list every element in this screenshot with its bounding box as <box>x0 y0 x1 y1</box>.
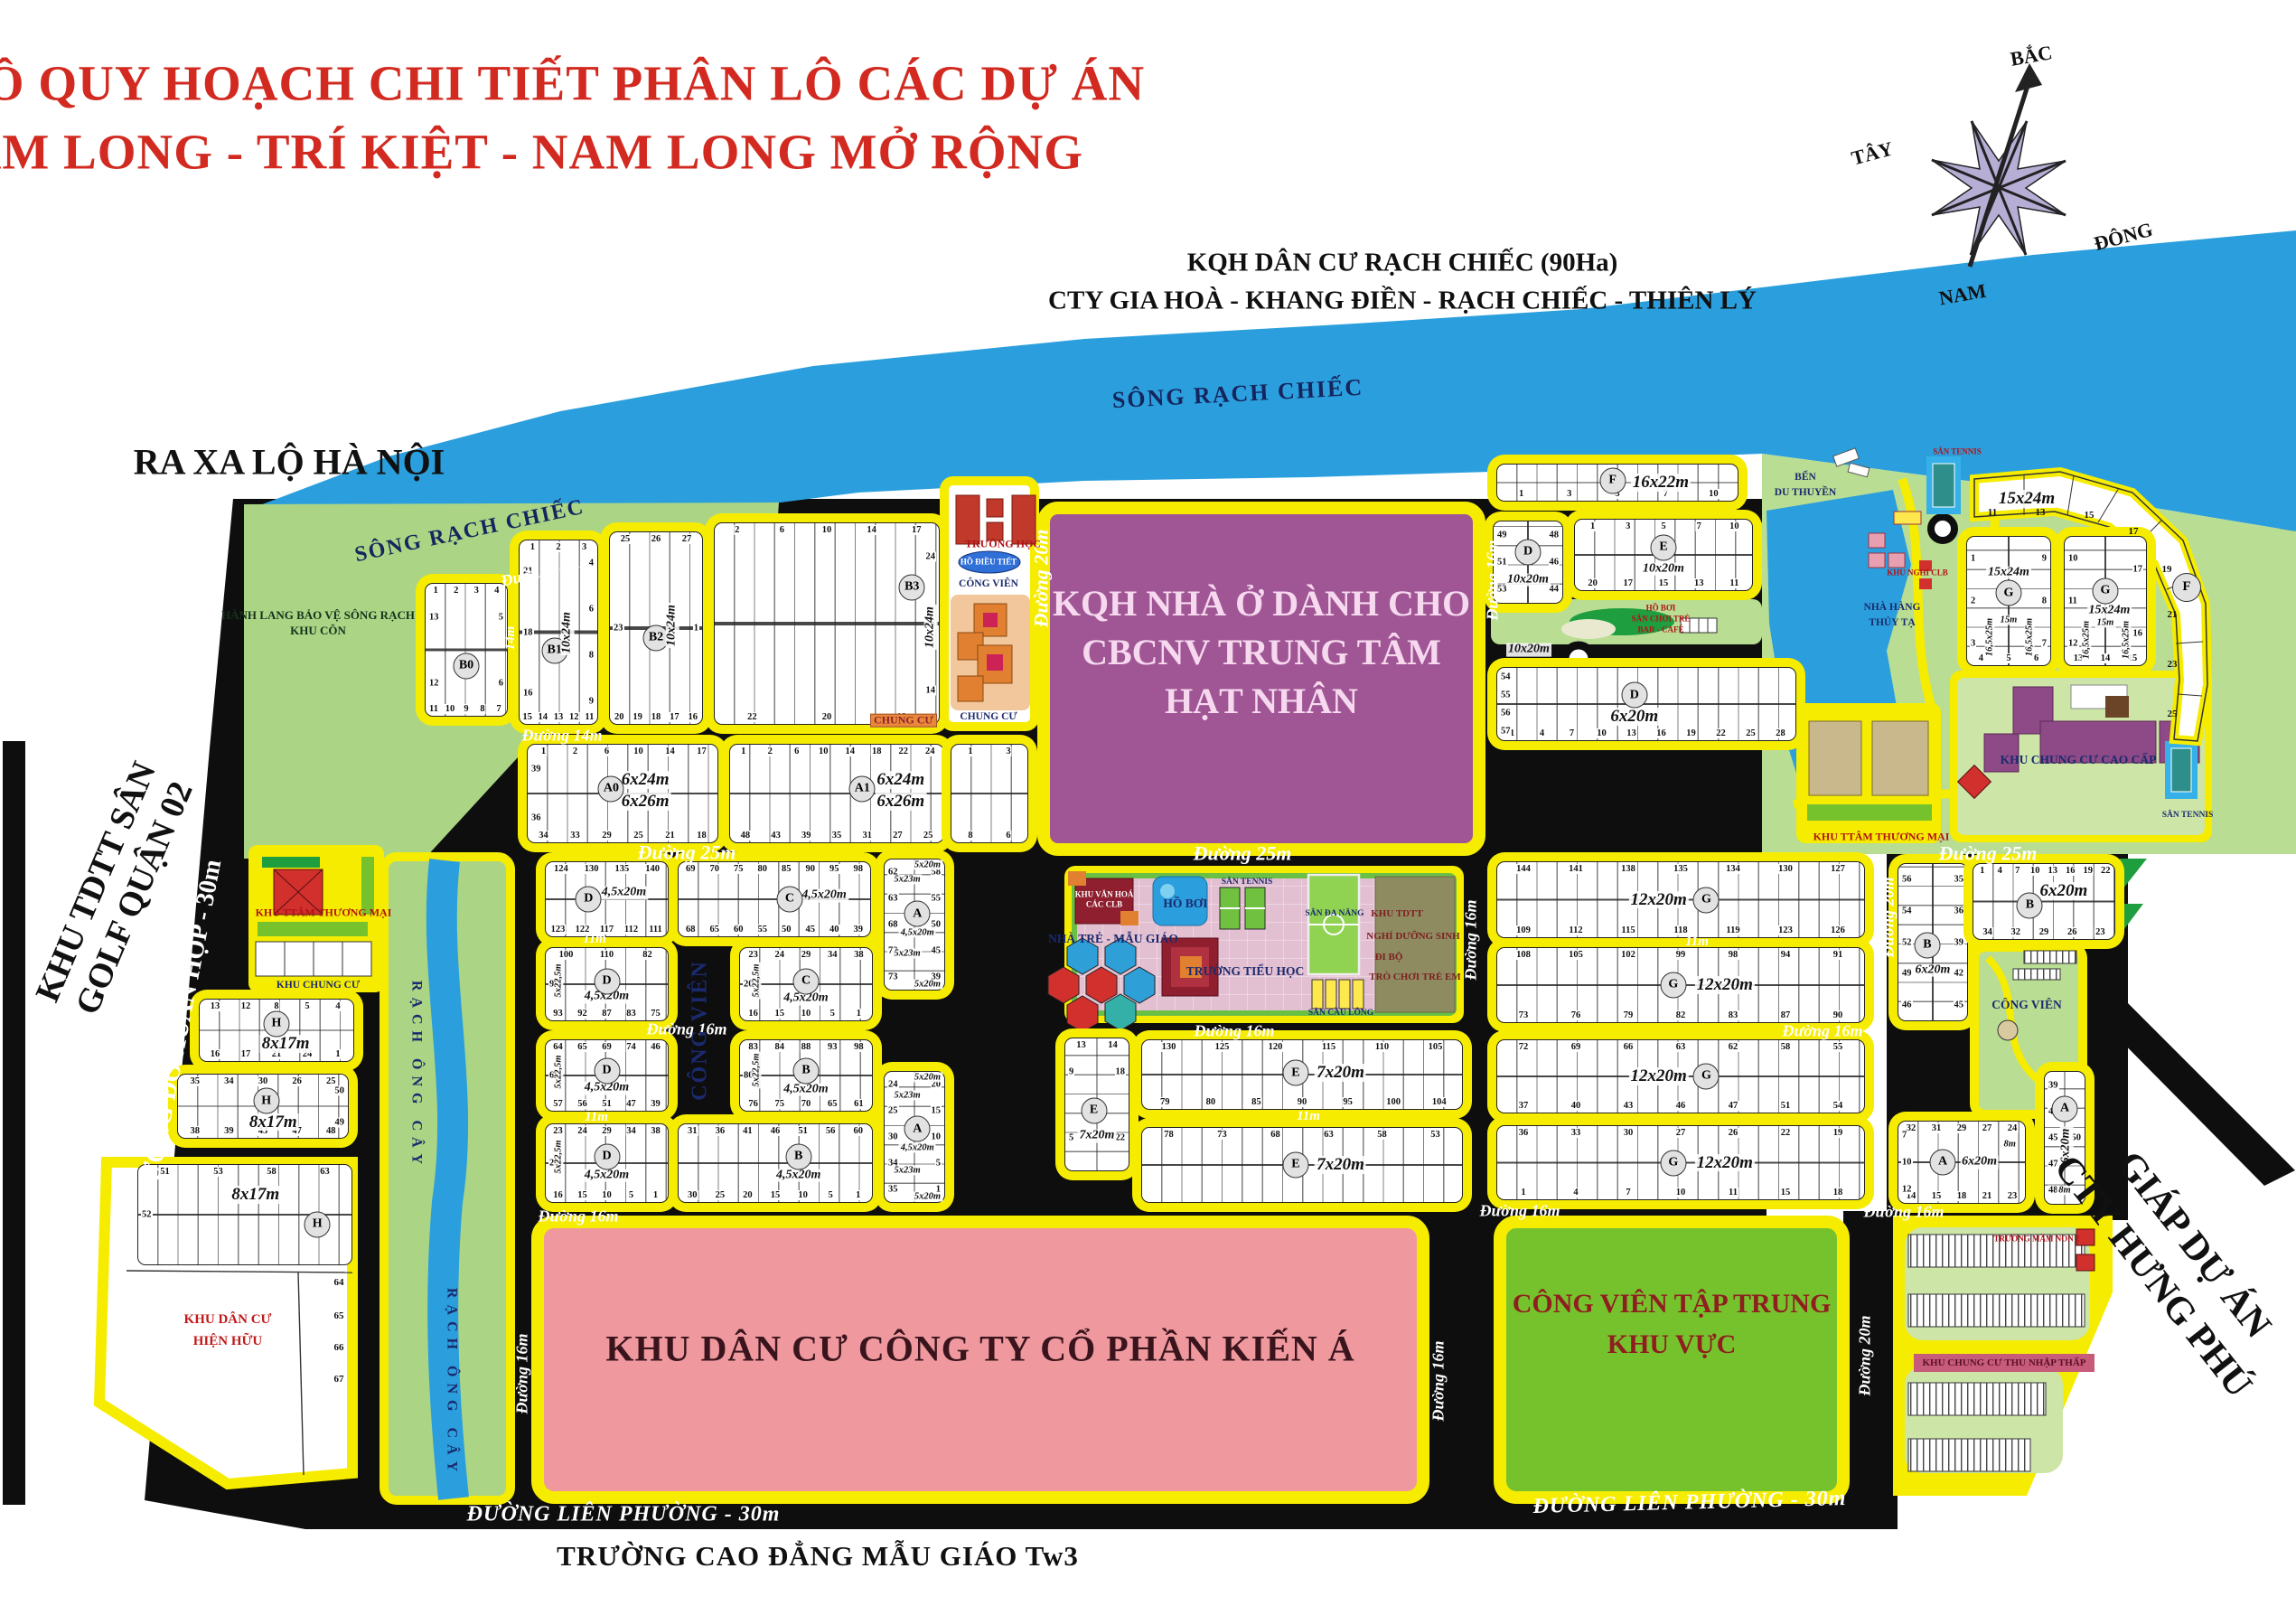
retention-pond-label: HỒ ĐIỀU TIẾT <box>961 558 1017 566</box>
trade-center-label: KHU TTÂM THƯƠNG MẠI <box>256 907 392 919</box>
map-label: 19 <box>2162 565 2172 576</box>
kindergarten-label: NHÀ TRẺ - MẪU GIÁO <box>1048 933 1178 945</box>
adjacent-project-line2: CTY GIA HOÀ - KHANG ĐIỀN - RẠCH CHIẾC - … <box>1048 286 1757 316</box>
highway-exit-sign: RA XA LỘ HÀ NỘI <box>134 441 445 484</box>
canal-label: RẠCH ÔNG CÂY <box>408 981 424 1170</box>
pool-label: HỒ BƠI <box>1646 604 1676 612</box>
map-label: 25 <box>2168 709 2178 720</box>
river-buffer-line1: HÀNH LANG BẢO VỆ SÔNG RẠCH <box>221 608 415 622</box>
cafe-label: BAR - CAFÉ <box>1638 625 1684 634</box>
luxury-apartment-label: KHU CHUNG CƯ CAO CẤP <box>2001 754 2157 766</box>
map-label: Đường 20m <box>1880 878 1898 958</box>
apartment-tag: CHUNG CƯ <box>870 714 937 728</box>
central-park-label: CÔNG VIÊN TẬP TRUNG KHU VỰC <box>1513 1283 1832 1365</box>
sports-area-label: KHU TDTT <box>1371 909 1423 920</box>
existing-residential-label: KHU DÂN CƯ HIỆN HỮU <box>184 1309 272 1352</box>
apartment-label: CHUNG CƯ <box>960 711 1017 722</box>
page-title-line2: NAM LONG - TRÍ KIỆT - NAM LONG MỞ RỘNG <box>0 124 1083 181</box>
block-id-F: F <box>2172 573 2201 602</box>
badminton-label: SÂN CẦU LÔNG <box>1308 1010 1373 1019</box>
hienhuu-line2: HIỆN HỮU <box>193 1334 263 1348</box>
playground-label: SÂN CHƠI TRẺ <box>1632 615 1691 623</box>
map-label: Đường 20m <box>1857 1316 1874 1396</box>
map-label: 11m <box>1685 935 1709 950</box>
map-label: 10x24m <box>561 610 575 655</box>
page-title-line1: SƠ ĐỒ QUY HOẠCH CHI TIẾT PHÂN LÔ CÁC DỰ … <box>0 55 1145 112</box>
map-label: Đường 16m <box>1463 900 1480 981</box>
culture-house-label: CÁC CLB <box>1086 900 1122 908</box>
map-label: Đường 25m <box>638 841 736 862</box>
map-label: 21 <box>2168 610 2178 621</box>
school-label: TRƯỜNG HỌC <box>965 539 1041 550</box>
zone-kqh-label: KQH NHÀ Ở DÀNH CHO CBCNV TRUNG TÂM HẠT N… <box>1053 579 1470 726</box>
park-strip-label: CÔNG VIÊN <box>689 960 711 1101</box>
map-label: Đường 16m <box>1195 1023 1275 1040</box>
restaurant-label: NHÀ HÀNG <box>1864 602 1921 613</box>
sports-area-label: NGHỈ DƯỠNG SINH <box>1366 932 1460 943</box>
kqh-line2: CBCNV TRUNG TÂM <box>1082 632 1441 672</box>
map-label: 66 <box>334 1343 344 1354</box>
map-label: Đường 14m <box>522 728 603 745</box>
map-label: Đường 25m <box>1194 842 1292 863</box>
multi-field-label: SÂN ĐA NĂNG <box>1306 910 1364 919</box>
sports-area-label: TRÒ CHƠI TRẺ EM <box>1369 972 1461 983</box>
lien-phuong-road-label: ĐƯỜNG LIÊN PHƯỜNG - 30m <box>467 1503 781 1527</box>
river-buffer-line2: KHU CÔN <box>290 624 346 637</box>
river-buffer-label: HÀNH LANG BẢO VỆ SÔNG RẠCH KHU CÔN <box>221 608 415 639</box>
kqh-line1: KQH NHÀ Ở DÀNH CHO <box>1053 583 1470 624</box>
map-label: 64 <box>334 1278 344 1289</box>
restaurant-label: THỦY TẠ <box>1869 617 1915 628</box>
map-label: Đường 16m <box>1430 1341 1448 1422</box>
marina-label: DU THUYỀN <box>1775 487 1836 498</box>
map-label: 65 <box>334 1311 344 1322</box>
preschool-label: TRƯỜNG MẦM NON 2 <box>1994 1235 2080 1243</box>
map-label: 11m <box>1297 1110 1320 1124</box>
map-label: Đường 16m <box>1480 1203 1560 1220</box>
central-park-line2: KHU VỰC <box>1607 1329 1737 1359</box>
tennis-label: SÂN TENNIS <box>2162 812 2214 821</box>
apartment-label: KHU CHUNG CƯ <box>276 980 360 991</box>
marina-label: BẾN <box>1795 472 1816 483</box>
map-label: 11m <box>583 933 606 947</box>
planning-map-page: { "title":{"line1":"SƠ ĐỒ QUY HOẠCH CHI … <box>0 0 2296 1606</box>
tennis-label: SÂN TENNIS <box>1933 447 1982 456</box>
club-label: KHU NGHỈ CLB <box>1887 568 1948 577</box>
adjacent-project-line1: KQH DÂN CƯ RẠCH CHIẾC (90Ha) <box>1187 249 1618 278</box>
map-label: Đường 16m <box>539 1208 619 1226</box>
map-label: 67 <box>334 1375 344 1385</box>
map-label: Đường 16m <box>1485 540 1502 621</box>
map-label: 14m <box>504 626 519 651</box>
park-label: CÔNG VIÊN <box>959 578 1018 589</box>
map-label: Đường 14m <box>500 554 582 590</box>
map-label: Đường 16m <box>514 1334 531 1414</box>
map-label: 17 <box>2129 527 2139 538</box>
map-label: 11m <box>585 1111 608 1125</box>
sports-area-label: ĐI BỘ <box>1375 953 1403 963</box>
map-label: 10x24m <box>666 603 679 648</box>
primary-school-label: TRƯỜNG TIỂU HỌC <box>1186 965 1305 978</box>
kien-a-zone-label: KHU DÂN CƯ CÔNG TY CỔ PHẦN KIẾN Á <box>605 1328 1354 1370</box>
low-income-apartment-label: KHU CHUNG CƯ THU NHẬP THẤP <box>1922 1357 2085 1368</box>
canal-label: RẠCH ÔNG CÂY <box>444 1288 459 1478</box>
park-label: CÔNG VIÊN <box>1991 999 2061 1011</box>
map-label: Đường 25m <box>1939 842 2038 863</box>
map-label: 11 <box>1988 508 1997 519</box>
trade-center-label: KHU TTÂM THƯƠNG MẠI <box>1813 831 1950 843</box>
central-park-line1: CÔNG VIÊN TẬP TRUNG <box>1513 1289 1832 1319</box>
culture-house-label: KHU VĂN HOÁ <box>1075 890 1134 898</box>
college-label: TRƯỜNG CAO ĐẲNG MẪU GIÁO Tw3 <box>557 1540 1079 1573</box>
map-label: Đường 16m <box>647 1021 727 1038</box>
map-label: 10x24m <box>924 605 938 650</box>
map-label: 13 <box>2036 508 2046 519</box>
tennis-label: SÂN TENNIS <box>1222 878 1273 888</box>
kqh-line3: HẠT NHÂN <box>1165 681 1358 721</box>
map-label: 15 <box>2085 511 2095 521</box>
map-label: 23 <box>2168 660 2178 671</box>
map-label: 15x24m <box>1997 490 2057 508</box>
hienhuu-line1: KHU DÂN CƯ <box>184 1312 272 1327</box>
pool-label: HỒ BƠI <box>1163 897 1207 910</box>
map-label: Đường 16m <box>1864 1204 1945 1221</box>
map-label: 10x20m <box>1506 643 1551 657</box>
map-label: Đường 16m <box>1783 1023 1863 1040</box>
